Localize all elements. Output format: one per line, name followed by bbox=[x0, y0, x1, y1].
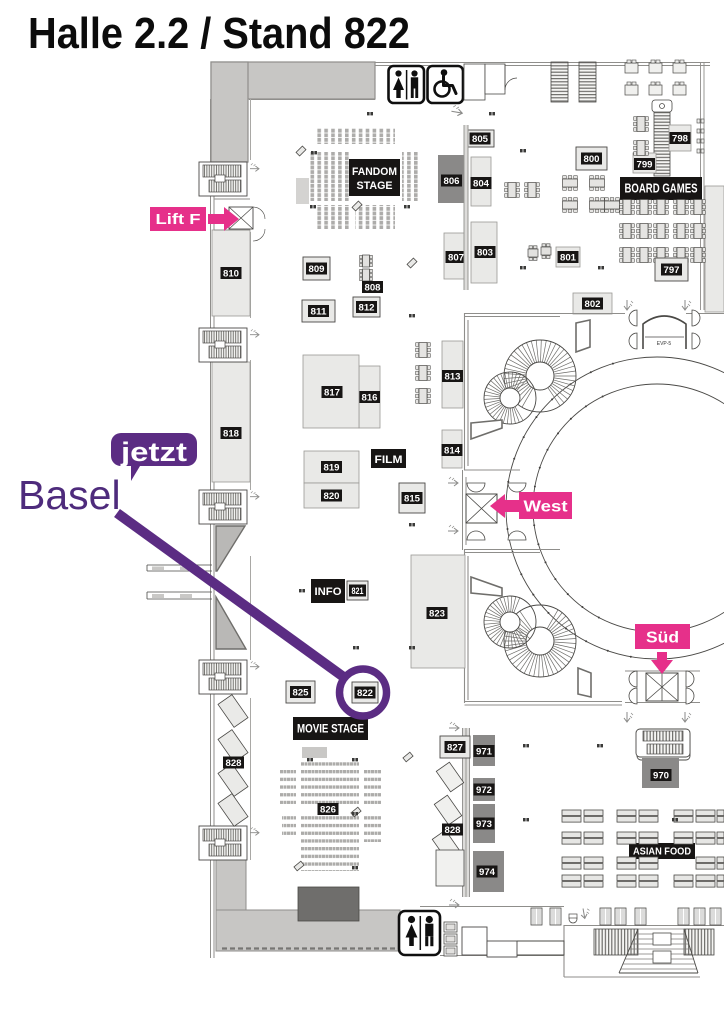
svg-text:799: 799 bbox=[637, 160, 653, 170]
svg-text:BOARD GAMES: BOARD GAMES bbox=[625, 182, 698, 196]
svg-text:798: 798 bbox=[672, 134, 688, 144]
svg-text:815: 815 bbox=[404, 494, 420, 504]
svg-text:809: 809 bbox=[309, 264, 325, 274]
svg-text:ASIAN FOOD: ASIAN FOOD bbox=[633, 847, 691, 858]
svg-text:803: 803 bbox=[477, 248, 493, 258]
svg-text:FANDOM: FANDOM bbox=[352, 166, 397, 178]
svg-text:820: 820 bbox=[324, 491, 340, 501]
svg-text:816: 816 bbox=[362, 393, 378, 403]
svg-text:818: 818 bbox=[223, 429, 239, 439]
svg-text:810: 810 bbox=[223, 269, 239, 279]
svg-text:STAGE: STAGE bbox=[357, 180, 393, 192]
svg-text:971: 971 bbox=[476, 747, 492, 757]
svg-text:817: 817 bbox=[324, 388, 340, 398]
svg-text:Lift F: Lift F bbox=[156, 211, 201, 228]
svg-text:INFO: INFO bbox=[315, 586, 342, 598]
svg-text:973: 973 bbox=[476, 819, 492, 829]
svg-text:822: 822 bbox=[357, 688, 373, 698]
svg-text:797: 797 bbox=[664, 265, 680, 275]
svg-text:974: 974 bbox=[479, 867, 496, 877]
svg-text:Halle 2.2 / Stand 822: Halle 2.2 / Stand 822 bbox=[28, 9, 410, 58]
svg-text:823: 823 bbox=[429, 609, 445, 619]
svg-text:814: 814 bbox=[444, 446, 461, 456]
svg-text:Basel: Basel bbox=[18, 472, 121, 518]
svg-text:821: 821 bbox=[352, 586, 364, 596]
svg-text:808: 808 bbox=[365, 283, 381, 293]
svg-text:828: 828 bbox=[445, 825, 461, 835]
svg-text:MOVIE STAGE: MOVIE STAGE bbox=[297, 722, 364, 736]
svg-text:806: 806 bbox=[444, 176, 460, 186]
svg-text:jetzt: jetzt bbox=[120, 437, 187, 467]
svg-text:827: 827 bbox=[447, 743, 463, 753]
svg-text:Süd: Süd bbox=[646, 630, 679, 647]
svg-text:812: 812 bbox=[359, 303, 375, 313]
svg-text:813: 813 bbox=[445, 372, 461, 382]
svg-text:970: 970 bbox=[653, 771, 669, 781]
svg-text:807: 807 bbox=[448, 253, 464, 263]
svg-text:972: 972 bbox=[476, 785, 492, 795]
svg-text:828: 828 bbox=[226, 758, 242, 768]
svg-text:West: West bbox=[524, 499, 569, 516]
svg-text:802: 802 bbox=[585, 299, 601, 309]
svg-text:804: 804 bbox=[473, 179, 490, 189]
svg-text:825: 825 bbox=[293, 688, 309, 698]
svg-text:805: 805 bbox=[472, 134, 488, 144]
svg-text:FILM: FILM bbox=[375, 454, 403, 466]
svg-text:800: 800 bbox=[584, 154, 600, 164]
svg-text:826: 826 bbox=[320, 805, 336, 815]
svg-text:801: 801 bbox=[560, 253, 576, 263]
svg-text:EVP-5: EVP-5 bbox=[657, 341, 672, 347]
svg-text:811: 811 bbox=[311, 307, 327, 317]
svg-text:819: 819 bbox=[324, 463, 340, 473]
